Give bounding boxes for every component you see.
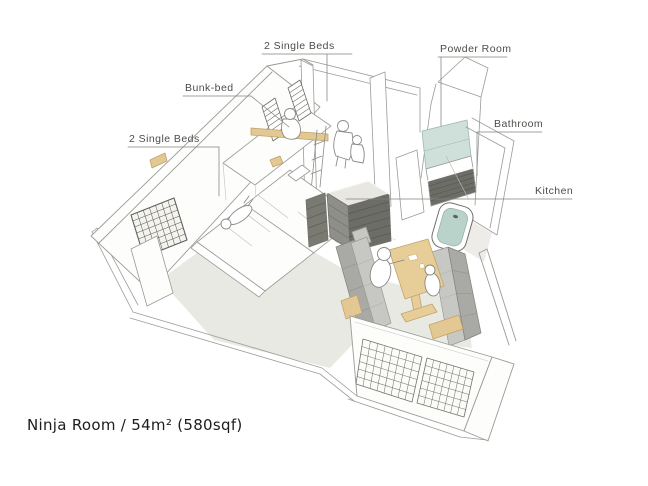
label-2-single-beds-top: 2 Single Beds [264,41,335,52]
powder-room [421,84,481,206]
kitchen-lower-cabinet [306,193,328,247]
drawing-title: Ninja Room / 54m² (580sqf) [27,416,243,434]
illustration-canvas: 2 Single Beds Bunk-bed 2 Single Beds Pow… [0,0,648,486]
label-powder-room: Powder Room [440,44,511,55]
label-2-single-beds-left: 2 Single Beds [129,134,200,145]
center-figures [334,121,365,169]
label-bunk-bed: Bunk-bed [185,83,234,94]
label-bathroom: Bathroom [494,119,543,130]
label-kitchen: Kitchen [535,186,573,197]
floorplan-illustration [0,0,648,486]
